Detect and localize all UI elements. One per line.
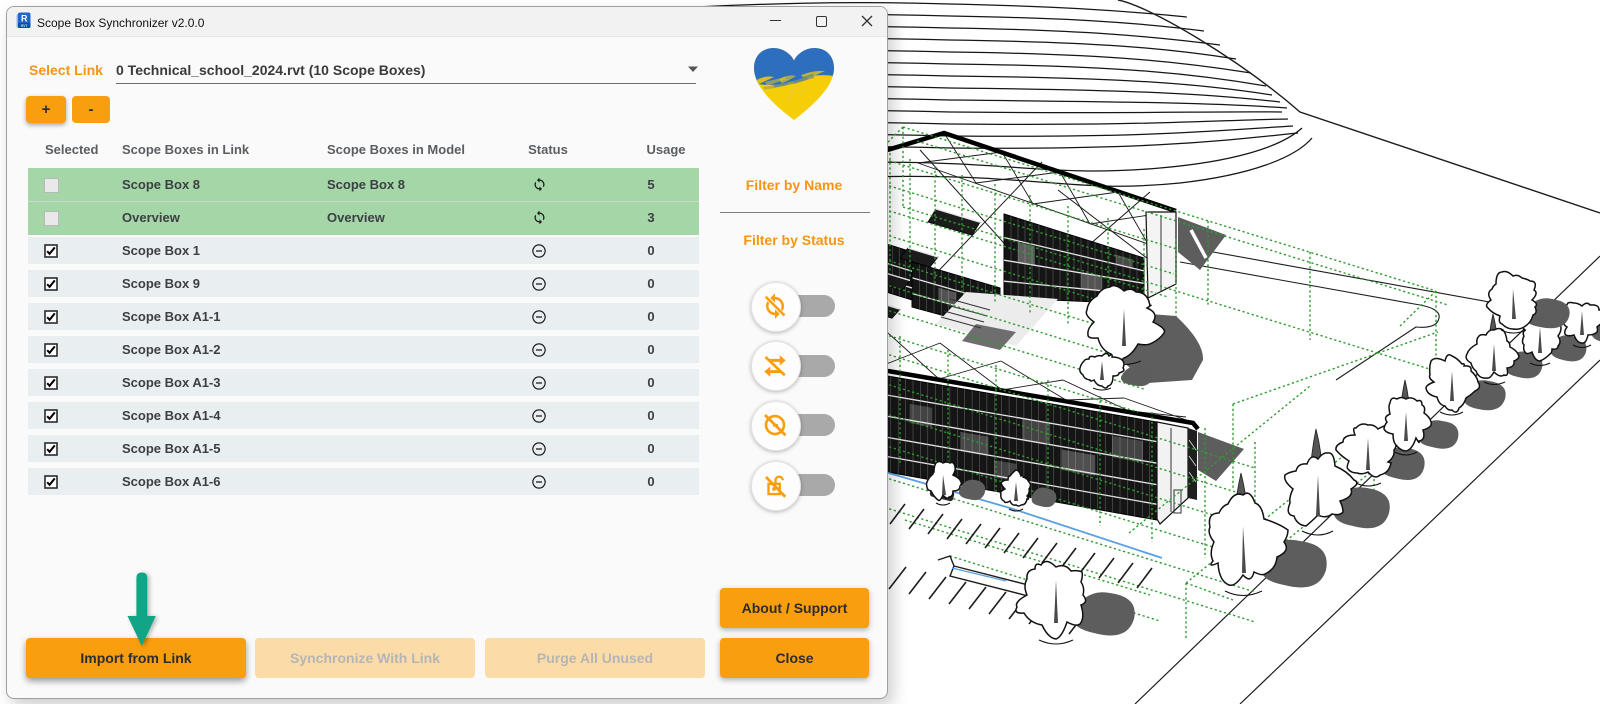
svg-text:R: R xyxy=(21,14,28,24)
svg-text:RVT: RVT xyxy=(21,24,27,28)
